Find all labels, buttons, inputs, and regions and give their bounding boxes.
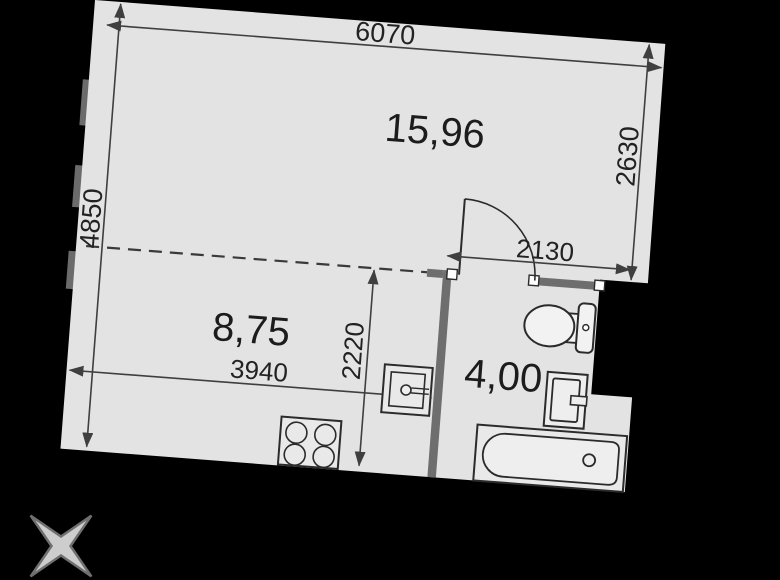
room-bathroom-area-label: 4,00 — [463, 352, 544, 402]
room-kitchen-area-label: 8,75 — [211, 305, 292, 355]
dim-label-left: 4850 — [74, 187, 109, 249]
stove-symbol — [278, 417, 342, 469]
dim-label-top: 6070 — [354, 16, 416, 51]
floor-plan-image: 6070 4850 2630 2130 3940 2220 15,96 8,75… — [0, 0, 780, 580]
wall-stub — [427, 269, 444, 278]
dim-label-kitchen-depth: 2220 — [336, 321, 370, 381]
plan-rotated-group: 6070 4850 2630 2130 3940 2220 15,96 8,75… — [53, 0, 666, 493]
dim-label-kitchen-width: 3940 — [229, 354, 289, 388]
washbasin-symbol — [544, 372, 589, 429]
room-living-area-label: 15,96 — [383, 106, 486, 158]
door-jamb-right — [528, 275, 539, 286]
dim-label-right: 2630 — [610, 125, 645, 187]
kitchen-sink-symbol — [381, 364, 433, 416]
wall-end-block — [594, 280, 605, 291]
dim-label-door-wall: 2130 — [515, 233, 575, 267]
door-jamb-left — [447, 269, 458, 280]
bathtub-symbol — [473, 425, 627, 492]
floor-plan-canvas: 6070 4850 2630 2130 3940 2220 15,96 8,75… — [0, 0, 780, 580]
